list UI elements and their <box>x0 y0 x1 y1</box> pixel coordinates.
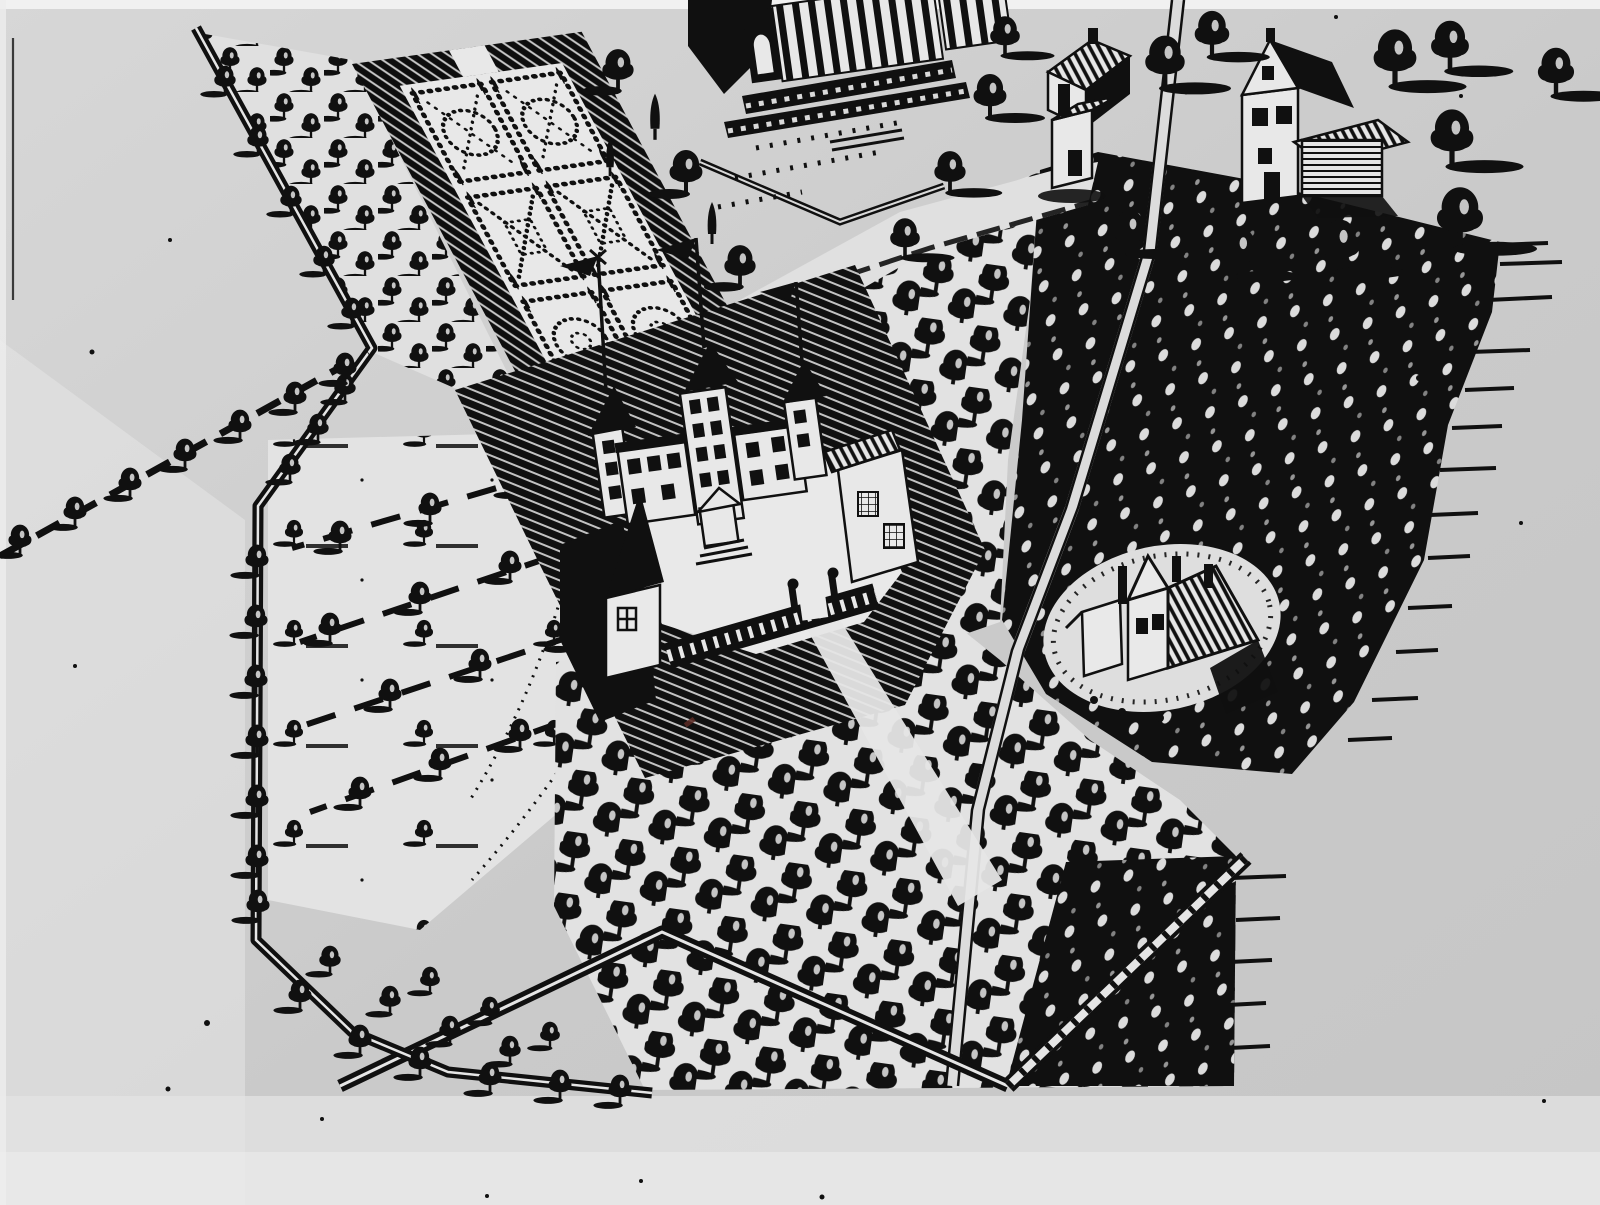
barn-shadow <box>1302 196 1398 218</box>
chimney <box>1204 564 1213 588</box>
estate-engraving <box>0 0 1600 1205</box>
chimney <box>1266 28 1275 42</box>
door <box>1264 172 1280 202</box>
engraving-photo <box>0 0 1600 1205</box>
chimney <box>1172 556 1181 582</box>
chimney <box>1118 566 1127 604</box>
chimney <box>1088 28 1098 44</box>
door <box>1068 150 1082 176</box>
chimney <box>1058 84 1070 116</box>
gate-gap <box>798 583 828 620</box>
